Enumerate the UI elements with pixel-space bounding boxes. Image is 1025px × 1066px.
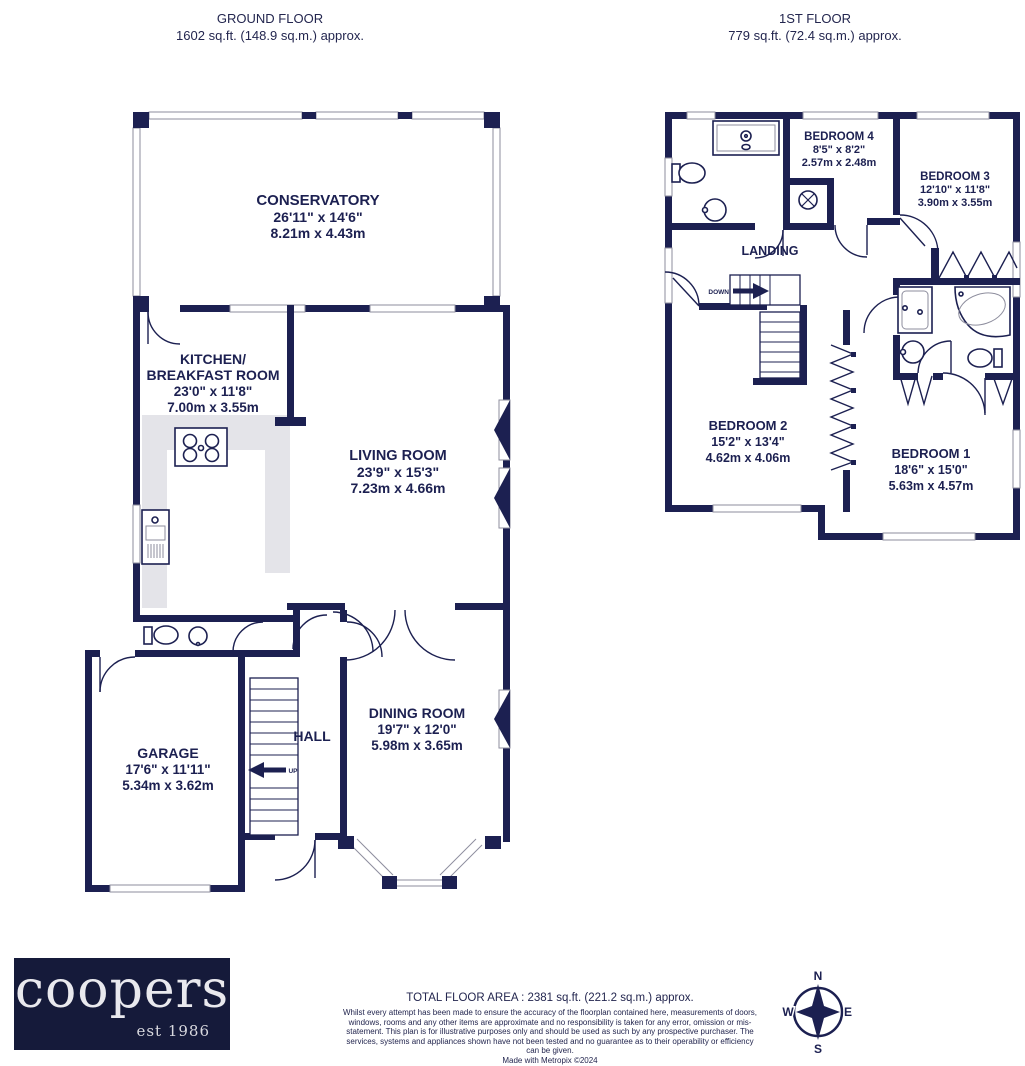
dining-room-dim-m: 5.98m x 3.65m <box>371 738 463 753</box>
conservatory-label: CONSERVATORY <box>256 192 379 209</box>
garage-label: GARAGE <box>137 745 198 761</box>
compass-s: S <box>814 1042 822 1056</box>
dining-room-dim-ft: 19'7" x 12'0" <box>377 722 456 737</box>
bedroom1-wardrobe-zigzag <box>831 345 856 470</box>
coopers-logo: coopers est 1986 <box>14 958 230 1050</box>
first-floor-doors <box>665 215 985 415</box>
hob-icon <box>175 428 227 466</box>
bedroom3-label: BEDROOM 3 <box>920 171 990 183</box>
bedroom1-dim-ft: 18'6" x 15'0" <box>894 463 967 477</box>
hall-label: HALL <box>293 728 331 744</box>
bedroom3-dim-ft: 12'10" x 11'8" <box>920 184 990 196</box>
shower-room-basin-icon <box>703 199 727 221</box>
ground-floor-header: GROUND FLOOR 1602 sq.ft. (148.9 sq.m.) a… <box>100 10 440 44</box>
ground-floor-plan: UP CONSERVATORY <box>80 100 520 900</box>
kitchen-label-1: KITCHEN/ <box>180 351 246 367</box>
disclaimer-text: Whilst every attempt has been made to en… <box>340 1008 760 1056</box>
shower-room-toilet-icon <box>672 163 705 183</box>
ground-floor-area: 1602 sq.ft. (148.9 sq.m.) approx. <box>100 27 440 44</box>
shower-icon <box>713 121 779 155</box>
compass-w: W <box>782 1005 794 1019</box>
kitchen-dim-m: 7.00m x 3.55m <box>167 400 259 415</box>
bedroom2-label: BEDROOM 2 <box>709 418 788 433</box>
bedroom3-dim-m: 3.90m x 3.55m <box>918 197 993 209</box>
metropix-credit: Made with Metropix ©2024 <box>340 1056 760 1066</box>
logo-tagline: est 1986 <box>136 1022 210 1040</box>
compass-rose: N S W E <box>778 958 858 1062</box>
bedroom1-wardrobe-doors <box>900 376 1013 404</box>
first-floor-plan: DOWN <box>655 100 1025 550</box>
conservatory-dim-m: 8.21m x 4.43m <box>271 225 366 241</box>
landing-stairs: DOWN <box>708 275 800 378</box>
first-floor-area: 779 sq.ft. (72.4 sq.m.) approx. <box>665 27 965 44</box>
kitchen-sink-icon <box>142 510 169 564</box>
garage-dim-ft: 17'6" x 11'11" <box>125 762 210 777</box>
bedroom4-dim-m: 2.57m x 2.48m <box>802 157 877 169</box>
bathroom-toilet-icon <box>968 349 1002 367</box>
bedroom4-dim-ft: 8'5" x 8'2" <box>813 144 865 156</box>
ground-floor-title: GROUND FLOOR <box>100 10 440 27</box>
landing-label: LANDING <box>742 244 799 258</box>
total-floor-area: TOTAL FLOOR AREA : 2381 sq.ft. (221.2 sq… <box>340 992 760 1004</box>
dining-bay-window <box>338 836 501 889</box>
airing-cupboard-cylinder-icon <box>799 191 817 209</box>
floorplan-page: { "palette": { "wall": "#1c2051", "count… <box>0 0 1025 1064</box>
bedroom4-label: BEDROOM 4 <box>804 131 874 143</box>
living-room-dim-m: 7.23m x 4.66m <box>351 480 446 496</box>
bedroom1-dim-m: 5.63m x 4.57m <box>889 479 974 493</box>
first-floor-title: 1ST FLOOR <box>665 10 965 27</box>
living-room-dim-ft: 23'9" x 15'3" <box>357 464 439 480</box>
logo-brand-text: coopers <box>14 960 230 1020</box>
kitchen-dim-ft: 23'0" x 11'8" <box>174 384 253 399</box>
down-label: DOWN <box>708 289 729 296</box>
bedroom2-dim-ft: 15'2" x 13'4" <box>711 435 784 449</box>
corner-bath-icon <box>955 287 1010 337</box>
bedroom2-dim-m: 4.62m x 4.06m <box>706 451 791 465</box>
garage-dim-m: 5.34m x 3.62m <box>122 778 214 793</box>
wc-basin-icon <box>189 627 207 646</box>
bathroom-basin-icon <box>901 341 925 363</box>
first-floor-header: 1ST FLOOR 779 sq.ft. (72.4 sq.m.) approx… <box>665 10 965 44</box>
hall-stairs: UP <box>248 678 298 835</box>
living-room-label: LIVING ROOM <box>349 448 446 464</box>
bathroom-vanity-icon <box>898 287 932 333</box>
dining-room-label: DINING ROOM <box>369 705 465 721</box>
footer-text-block: TOTAL FLOOR AREA : 2381 sq.ft. (221.2 sq… <box>340 992 760 1066</box>
conservatory-dim-ft: 26'11" x 14'6" <box>273 209 362 225</box>
wc-toilet-icon <box>144 626 178 644</box>
kitchen-label-2: BREAKFAST ROOM <box>147 367 280 383</box>
up-label: UP <box>288 768 298 775</box>
compass-e: E <box>844 1005 852 1019</box>
compass-n: N <box>814 969 823 983</box>
bedroom1-label: BEDROOM 1 <box>892 446 971 461</box>
bedroom3-wardrobe-zigzag <box>939 252 1017 280</box>
